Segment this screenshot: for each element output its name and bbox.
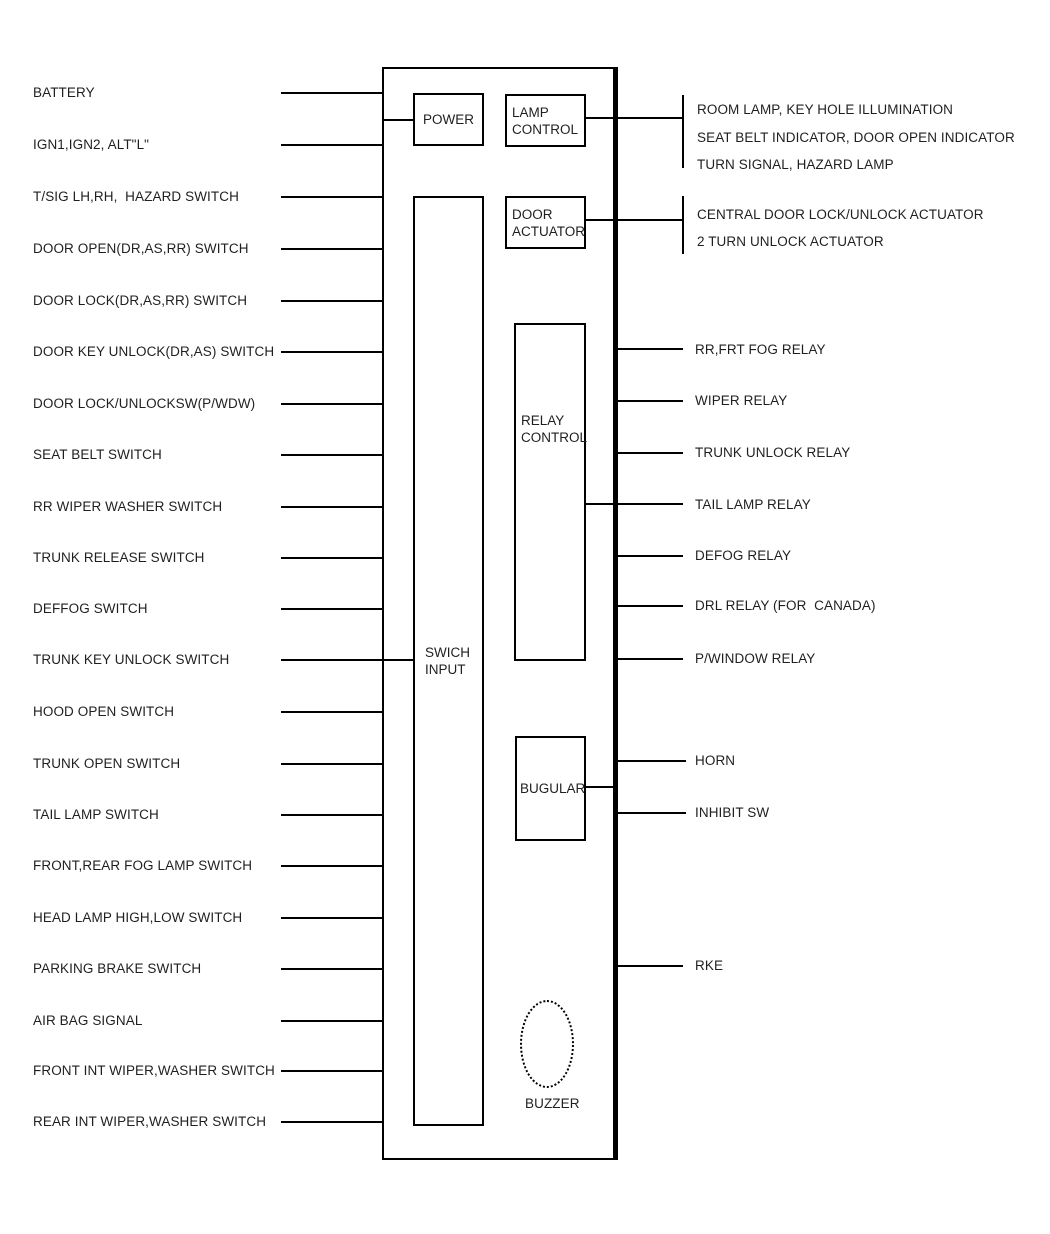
relay-output-label-drl: DRL RELAY (FOR CANADA) [695, 596, 876, 616]
swich-input-box-label: SWICH INPUT [425, 644, 470, 678]
swich-input-box: SWICH INPUT [413, 196, 484, 1126]
relay-output-label-wiper: WIPER RELAY [695, 391, 787, 411]
left-input-label-ign: IGN1,IGN2, ALT"L" [33, 135, 149, 155]
rke-output-label: RKE [695, 956, 723, 976]
input-connector-line [281, 403, 383, 405]
input-connector-line [281, 814, 383, 816]
power-box-label: POWER [423, 111, 474, 128]
horn-output-line [616, 760, 686, 762]
input-connector-line [281, 917, 383, 919]
lamp-output-label-turn-signal: TURN SIGNAL, HAZARD LAMP [697, 155, 894, 175]
input-connector-line [281, 968, 383, 970]
buzzer-ellipse [520, 1000, 574, 1088]
left-input-label-tsig-hazard: T/SIG LH,RH, HAZARD SWITCH [33, 187, 239, 207]
rke-output-line [616, 965, 683, 967]
left-input-label-door-open: DOOR OPEN(DR,AS,RR) SWITCH [33, 239, 249, 259]
left-input-label-seat-belt: SEAT BELT SWITCH [33, 445, 162, 465]
input-connector-line [281, 763, 383, 765]
relay-output-label-tail-lamp: TAIL LAMP RELAY [695, 495, 811, 515]
horn-output-label: HORN [695, 751, 735, 771]
input-connector-line [281, 1121, 383, 1123]
bugular-box-label: BUGULAR [520, 780, 585, 797]
bugular-box: BUGULAR [515, 736, 586, 841]
door-output-label-2turn-unlock: 2 TURN UNLOCK ACTUATOR [697, 232, 884, 252]
input-connector-line [281, 454, 383, 456]
input-connector-line [281, 144, 383, 146]
input-connector-line [281, 1020, 383, 1022]
left-input-label-parking-brake: PARKING BRAKE SWITCH [33, 959, 201, 979]
input-connector-line [281, 557, 383, 559]
left-input-label-hood-open: HOOD OPEN SWITCH [33, 702, 174, 722]
left-input-label-rear-int-wiper: REAR INT WIPER,WASHER SWITCH [33, 1112, 266, 1132]
relay-control-box: RELAY CONTROL [514, 323, 586, 661]
left-input-label-trunk-open: TRUNK OPEN SWITCH [33, 754, 180, 774]
left-input-label-deffog: DEFFOG SWITCH [33, 599, 148, 619]
relay-control-box-label: RELAY CONTROL [521, 412, 587, 659]
relay-output-line [616, 400, 683, 402]
door-actuator-box: DOOR ACTUATOR [505, 196, 586, 249]
left-input-label-battery: BATTERY [33, 83, 95, 103]
diagram-canvas: POWER LAMP CONTROL DOOR ACTUATOR RELAY C… [0, 0, 1050, 1234]
input-connector-line [281, 608, 383, 610]
left-input-label-head-lamp: HEAD LAMP HIGH,LOW SWITCH [33, 908, 242, 928]
left-input-label-door-lock-unlock-sw: DOOR LOCK/UNLOCKSW(P/WDW) [33, 394, 255, 414]
left-input-label-front-int-wiper: FRONT INT WIPER,WASHER SWITCH [33, 1061, 275, 1081]
input-connector-line [281, 196, 383, 198]
input-connector-line [281, 351, 383, 353]
relay-output-line [616, 555, 683, 557]
left-input-label-trunk-key-unlock: TRUNK KEY UNLOCK SWITCH [33, 650, 229, 670]
input-connector-line [281, 1070, 383, 1072]
lamp-control-box-label: LAMP CONTROL [512, 104, 578, 138]
relay-output-line [616, 658, 683, 660]
power-box: POWER [413, 93, 484, 146]
relay-output-line [616, 348, 683, 350]
left-input-label-air-bag: AIR BAG SIGNAL [33, 1011, 142, 1031]
left-input-label-trunk-release: TRUNK RELEASE SWITCH [33, 548, 205, 568]
input-connector-line [281, 865, 383, 867]
inhibit-output-line [616, 812, 686, 814]
lamp-output-label-room-lamp: ROOM LAMP, KEY HOLE ILLUMINATION [697, 100, 953, 120]
relay-output-line [616, 452, 683, 454]
input-connector-line [281, 248, 383, 250]
left-input-label-door-key-unlock: DOOR KEY UNLOCK(DR,AS) SWITCH [33, 342, 274, 362]
left-input-label-front-rear-fog: FRONT,REAR FOG LAMP SWITCH [33, 856, 252, 876]
door-actuator-box-label: DOOR ACTUATOR [512, 206, 585, 240]
relay-output-label-p-window: P/WINDOW RELAY [695, 649, 815, 669]
left-input-label-door-lock: DOOR LOCK(DR,AS,RR) SWITCH [33, 291, 247, 311]
left-input-label-tail-lamp: TAIL LAMP SWITCH [33, 805, 159, 825]
relay-output-label-trunk-unlock: TRUNK UNLOCK RELAY [695, 443, 850, 463]
relay-output-line [616, 605, 683, 607]
input-connector-line [281, 92, 383, 94]
door-group-tick [682, 196, 684, 254]
lamp-control-box: LAMP CONTROL [505, 94, 586, 147]
lamp-group-tick [682, 95, 684, 168]
input-connector-line [281, 711, 383, 713]
lamp-output-label-seat-belt-ind: SEAT BELT INDICATOR, DOOR OPEN INDICATOR [697, 128, 1015, 148]
relay-output-label-rr-frt-fog: RR,FRT FOG RELAY [695, 340, 826, 360]
left-input-label-rr-wiper-washer: RR WIPER WASHER SWITCH [33, 497, 222, 517]
input-connector-line [281, 300, 383, 302]
input-connector-line [281, 506, 383, 508]
inhibit-sw-output-label: INHIBIT SW [695, 803, 769, 823]
door-output-label-central-lock: CENTRAL DOOR LOCK/UNLOCK ACTUATOR [697, 205, 984, 225]
relay-output-label-defog: DEFOG RELAY [695, 546, 791, 566]
